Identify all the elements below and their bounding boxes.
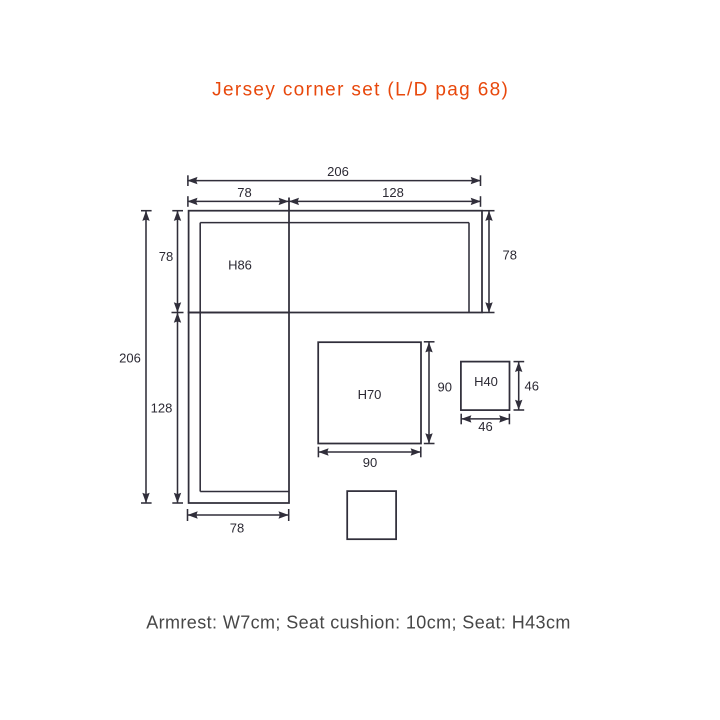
svg-text:Jersey corner set (L/D pag 68): Jersey corner set (L/D pag 68) xyxy=(212,80,509,101)
svg-text:128: 128 xyxy=(382,185,404,200)
svg-text:90: 90 xyxy=(363,455,377,470)
svg-text:206: 206 xyxy=(119,351,141,366)
svg-text:206: 206 xyxy=(327,164,349,179)
svg-text:78: 78 xyxy=(159,249,173,264)
svg-text:H40: H40 xyxy=(474,374,498,389)
svg-text:H86: H86 xyxy=(228,258,252,273)
svg-text:Armrest: W7cm; Seat cushion: 1: Armrest: W7cm; Seat cushion: 10cm; Seat:… xyxy=(146,613,571,633)
svg-text:128: 128 xyxy=(151,401,173,416)
svg-text:H70: H70 xyxy=(358,387,382,402)
svg-text:78: 78 xyxy=(230,521,244,536)
svg-text:90: 90 xyxy=(438,380,452,395)
svg-text:46: 46 xyxy=(478,419,492,434)
svg-text:78: 78 xyxy=(237,185,251,200)
svg-text:78: 78 xyxy=(503,248,517,263)
svg-text:46: 46 xyxy=(525,379,539,394)
